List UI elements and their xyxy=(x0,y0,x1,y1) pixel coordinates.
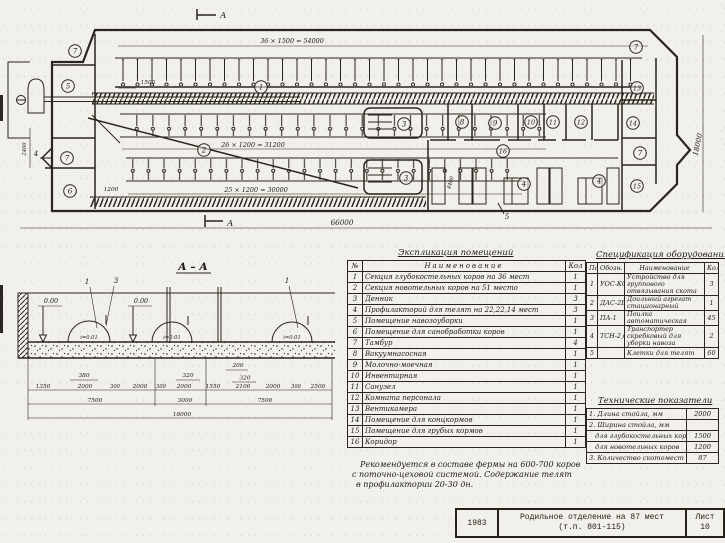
svg-text:А: А xyxy=(226,219,233,229)
svg-text:3: 3 xyxy=(404,174,409,183)
svg-text:i=0.01: i=0.01 xyxy=(80,335,98,341)
year-cell: 1983 xyxy=(457,510,499,536)
equipment-title: Спецификация оборудования xyxy=(596,250,725,260)
section-marker-bottom: А xyxy=(205,215,233,229)
svg-text:1: 1 xyxy=(85,277,90,286)
svg-text:1: 1 xyxy=(285,276,290,285)
svg-text:10: 10 xyxy=(527,118,535,126)
svg-text:13: 13 xyxy=(633,84,641,92)
svg-text:1500: 1500 xyxy=(141,80,156,86)
tech-table: 1. Длина стойла, мм2000 2. Ширина стойла… xyxy=(586,408,719,464)
stall-arcs: i=0.01 i=0.01 i=0.01 xyxy=(68,315,312,342)
year: 1983 xyxy=(467,519,486,528)
table-row: 1Секция глубокостельных коров на 36 мест… xyxy=(348,272,586,283)
svg-text:6: 6 xyxy=(68,187,73,196)
svg-text:2000: 2000 xyxy=(132,384,148,390)
stall-row-1 xyxy=(115,58,642,87)
table-row: 11Санузел1 xyxy=(348,382,586,393)
svg-text:16: 16 xyxy=(499,147,507,155)
svg-text:300: 300 xyxy=(110,384,121,390)
recommendation-note: Рекомендуется в составе фермы на 600-700… xyxy=(360,460,580,490)
svg-text:1: 1 xyxy=(259,83,264,92)
table-header: № Наименование Кол xyxy=(348,261,586,272)
room-label: 5 xyxy=(62,80,75,93)
section-wall xyxy=(18,293,28,358)
svg-text:4: 4 xyxy=(521,180,527,189)
svg-text:1550: 1550 xyxy=(206,384,221,390)
svg-text:i=0.01: i=0.01 xyxy=(163,335,181,341)
sheet-cell: Лист 10 xyxy=(687,510,723,536)
table-row: 7Тамбур4 xyxy=(348,338,586,349)
table-row: 10Инвентарная1 xyxy=(348,371,586,382)
room-label: 6 xyxy=(64,185,77,198)
cage-marker: 5 xyxy=(505,212,510,221)
drawing-code: (т.п. 801-115) xyxy=(558,523,625,533)
room-label: 7 xyxy=(69,45,82,58)
svg-text:25 × 1200 = 30000: 25 × 1200 = 30000 xyxy=(223,186,288,194)
svg-text:5: 5 xyxy=(66,82,71,91)
svg-text:2000: 2000 xyxy=(77,384,93,390)
room-label: 12 xyxy=(575,116,588,129)
svg-text:2500: 2500 xyxy=(310,384,326,390)
svg-text:А: А xyxy=(219,11,226,21)
room-label: 10 xyxy=(525,116,538,129)
table-row: 2Секция новотельных коров на 51 место1 xyxy=(348,283,586,294)
svg-text:2000: 2000 xyxy=(176,384,192,390)
svg-text:4: 4 xyxy=(33,149,39,158)
room-label: 7 xyxy=(61,152,74,165)
svg-text:18000: 18000 xyxy=(173,412,192,418)
svg-text:1200: 1200 xyxy=(104,187,119,193)
svg-text:0.00: 0.00 xyxy=(134,297,148,305)
room-label: 14 xyxy=(627,117,640,130)
explication-table: № Наименование Кол 1Секция глубокостельн… xyxy=(347,260,586,448)
room-label: 7 xyxy=(634,147,647,160)
stall-row-2 xyxy=(120,114,546,137)
svg-text:2400: 2400 xyxy=(22,142,28,157)
svg-text:7: 7 xyxy=(638,149,643,158)
svg-text:26 × 1200 = 31200: 26 × 1200 = 31200 xyxy=(220,141,285,149)
table-row: 3Денник3 xyxy=(348,294,586,305)
room-label: 11 xyxy=(547,116,560,129)
section-title: А – А xyxy=(177,261,208,273)
room-label: 9 xyxy=(489,117,502,130)
svg-text:3000: 3000 xyxy=(178,398,193,404)
note-line: с поточно-цеховой системой. Содержание т… xyxy=(352,470,580,480)
table-row: 15Помещение для грубых кормов1 xyxy=(348,426,586,437)
table-row: 5Помещение навозоуборки1 xyxy=(348,316,586,327)
svg-text:200: 200 xyxy=(231,363,243,369)
cage-leader xyxy=(498,203,504,214)
table-row: 2. Ширина стойла, мм xyxy=(587,420,719,431)
drawing-title: Родильное отделение на 87 мест xyxy=(520,513,664,523)
svg-text:18000: 18000 xyxy=(691,132,705,157)
svg-text:12: 12 xyxy=(577,118,585,126)
section-posts xyxy=(167,287,221,342)
concrete-floor xyxy=(28,342,335,358)
sheet-number: 10 xyxy=(700,523,710,533)
svg-text:0.00: 0.00 xyxy=(44,297,58,305)
svg-text:1350: 1350 xyxy=(36,384,51,390)
tech-title: Технические показатели xyxy=(598,396,712,406)
table-row: 4ТСН-2,0БТранспортер скребковый для убор… xyxy=(587,326,719,348)
svg-text:2: 2 xyxy=(201,146,207,155)
table-row: 1. Длина стойла, мм2000 xyxy=(587,409,719,420)
drawing-title-cell: Родильное отделение на 87 мест (т.п. 801… xyxy=(499,510,687,536)
svg-text:300: 300 xyxy=(291,384,302,390)
stall-row-3 xyxy=(126,158,524,181)
table-header: Поз Обозн. Наименование Кол xyxy=(587,263,719,274)
section-marker-top: А xyxy=(197,9,226,21)
room-label: 8 xyxy=(456,116,469,129)
table-row: 13Вентикамера1 xyxy=(348,404,586,415)
svg-text:i=0.01: i=0.01 xyxy=(283,335,301,341)
svg-text:66000: 66000 xyxy=(331,218,354,227)
svg-text:9: 9 xyxy=(493,119,498,128)
svg-text:3: 3 xyxy=(402,120,407,129)
room-label: 4 xyxy=(518,178,531,191)
svg-text:11: 11 xyxy=(549,118,557,126)
rear-alley-hatch xyxy=(90,197,426,207)
room-label: 7 xyxy=(630,41,643,54)
table-row: для глубокостельных коров1500 xyxy=(587,431,719,442)
room-label: 1 xyxy=(255,81,268,94)
feed-alley-hatch xyxy=(92,93,654,104)
svg-text:7: 7 xyxy=(73,47,78,56)
svg-text:320: 320 xyxy=(239,376,250,382)
svg-text:7: 7 xyxy=(65,154,70,163)
svg-text:7: 7 xyxy=(634,43,639,52)
table-row: для новотельных коров1200 xyxy=(587,442,719,453)
svg-text:14: 14 xyxy=(629,119,637,127)
svg-text:15: 15 xyxy=(633,182,641,190)
floor-plan: 5 А А 36 × 1500 = 54000 1500 26 × 1200 =… xyxy=(8,9,712,229)
svg-text:2000: 2000 xyxy=(265,384,281,390)
explication-title: Экспликация помещений xyxy=(398,248,513,258)
section-a-a: А – А i=0.01 i=0.01 i=0.01 0.00 xyxy=(18,261,335,420)
svg-text:380: 380 xyxy=(78,373,89,379)
section-dimensions: 380 320 200 320 1350 2000 300 2000 300 2… xyxy=(28,358,332,420)
svg-text:7500: 7500 xyxy=(258,398,273,404)
table-row: 16Коридор1 xyxy=(348,437,586,448)
table-row: 6Помещение для санобработки коров1 xyxy=(348,327,586,338)
table-row: 12Комната персонала1 xyxy=(348,393,586,404)
svg-text:7500: 7500 xyxy=(88,398,103,404)
table-row: 5Клетки для телят60 xyxy=(587,348,719,359)
sheet-label: Лист xyxy=(695,513,714,523)
svg-text:8: 8 xyxy=(460,118,465,127)
room-label: 2 xyxy=(198,144,211,157)
room-label: 3 xyxy=(400,172,413,185)
room-label: 3 xyxy=(398,118,411,131)
svg-text:320: 320 xyxy=(182,373,193,379)
room-label: 4 xyxy=(593,175,606,188)
table-row: 1УОС-КОУстройство для группового отвязыв… xyxy=(587,274,719,296)
note-line: в профилактории 20-30 дн. xyxy=(356,480,580,490)
table-row: 14Помещение для концкормов1 xyxy=(348,415,586,426)
room-label: 15 xyxy=(631,180,644,193)
svg-text:4: 4 xyxy=(596,177,602,186)
note-line: Рекомендуется в составе фермы на 600-700… xyxy=(360,460,580,470)
table-row: 4Профилакторий для телят на 22,22,14 мес… xyxy=(348,305,586,316)
room-label: 16 xyxy=(497,145,510,158)
table-row: 2ДАС-2БДоильный агрегат стационарный1 xyxy=(587,296,719,311)
table-row: 3. Количество скотомест87 xyxy=(587,453,719,464)
table-row: 8Вакуумнасосная1 xyxy=(348,349,586,360)
svg-text:3: 3 xyxy=(114,276,119,285)
scan-artifact xyxy=(0,95,3,121)
table-row: 9Молочно-моечная1 xyxy=(348,360,586,371)
blueprint-sheet: 5 А А 36 × 1500 = 54000 1500 26 × 1200 =… xyxy=(0,0,725,543)
table-row: 3ПА-1Поилка автоматическая45 xyxy=(587,311,719,326)
title-block: 1983 Родильное отделение на 87 мест (т.п… xyxy=(455,508,725,538)
level-mark: 0.00 xyxy=(38,297,62,342)
scan-artifact xyxy=(0,285,3,333)
level-mark: 0.00 xyxy=(128,297,152,342)
equipment-table: Поз Обозн. Наименование Кол 1УОС-КОУстро… xyxy=(586,262,719,359)
svg-text:300: 300 xyxy=(156,384,167,390)
room-label: 13 xyxy=(631,82,644,95)
svg-text:36 × 1500 = 54000: 36 × 1500 = 54000 xyxy=(260,37,324,45)
section-item-markers: 1 3 1 xyxy=(85,276,298,328)
svg-text:2100: 2100 xyxy=(235,384,251,390)
